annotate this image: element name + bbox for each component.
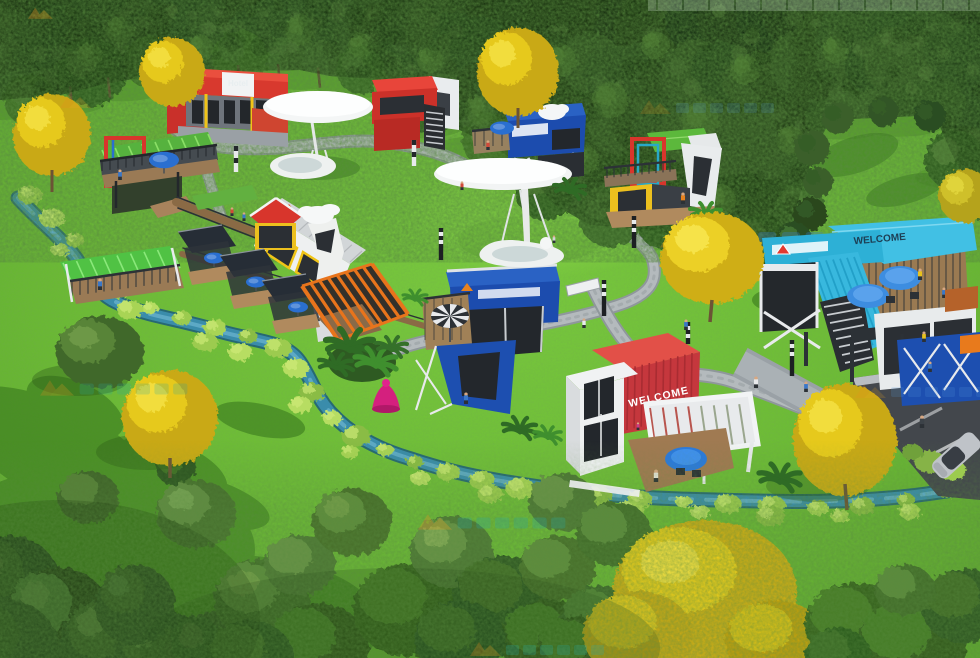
svg-text:Hotel: Hotel xyxy=(228,79,248,88)
